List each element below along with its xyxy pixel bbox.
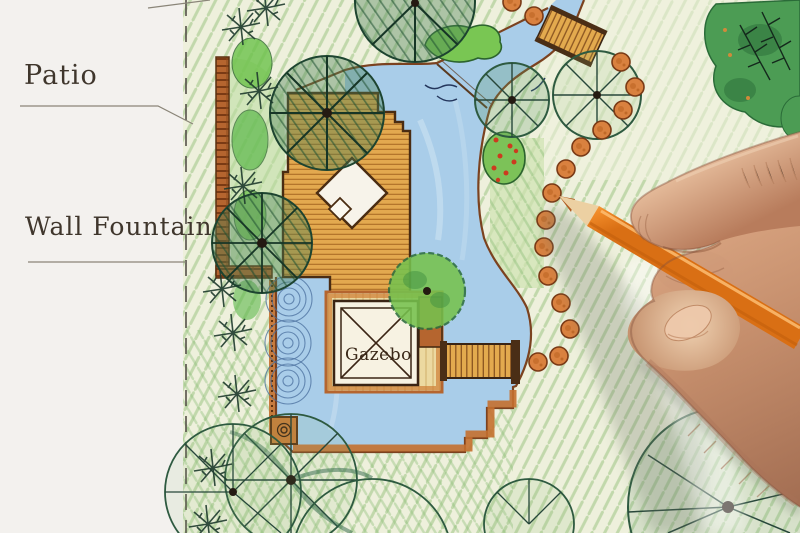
wall-fountain-label: Wall Fountain — [25, 212, 213, 241]
tree-symbol — [212, 193, 312, 293]
berry-shrub — [483, 132, 525, 184]
tree-symbol — [389, 253, 465, 329]
tree-symbol — [475, 63, 549, 137]
patio-label: Patio — [24, 60, 98, 91]
tree-symbol — [270, 56, 384, 170]
landscape-plan-photo: Gazebo — [0, 0, 800, 533]
plan-drawing: Gazebo — [0, 0, 800, 533]
boardwalk — [442, 344, 514, 378]
gazebo-label: Gazebo — [345, 345, 412, 365]
